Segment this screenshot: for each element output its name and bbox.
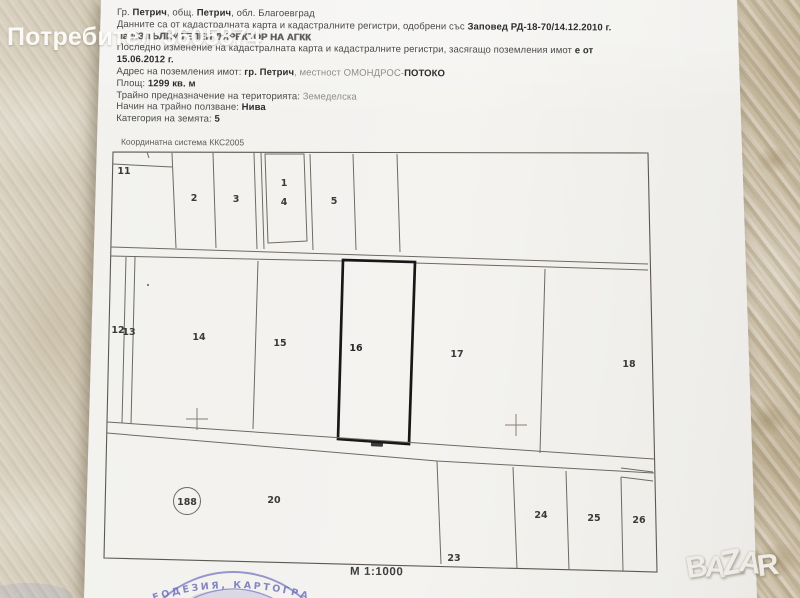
parcel-label-24: 24 — [534, 510, 548, 521]
official-stamp: ГЕОДЕЗИЯ, КАРТОГРАФ — [0, 0, 338, 598]
parcel-label-5: 5 — [331, 196, 338, 207]
ink-smudge — [0, 583, 73, 598]
map-scale-label: М 1:1000 — [350, 566, 404, 579]
parcel-label-2: 2 — [191, 193, 198, 204]
user-watermark: Потребител 3605874 — [7, 23, 261, 52]
parcel-label-3: 3 — [233, 194, 240, 205]
parcel-label-26: 26 — [632, 515, 646, 526]
parcel-label-16: 16 — [349, 343, 363, 354]
parcel-label-18: 18 — [622, 359, 636, 370]
top-band-boundaries — [111, 152, 648, 264]
parcel-label-11: 11 — [117, 166, 130, 177]
map-frame — [104, 152, 657, 572]
parcel-label-1: 1 — [281, 178, 288, 189]
parcel-label-17: 17 — [450, 349, 463, 360]
parcel-label-188: 188 — [177, 497, 197, 508]
survey-cross — [505, 414, 527, 436]
parcel-labels: 1123145121314151617182018823242526 — [111, 166, 646, 564]
survey-dot — [147, 284, 149, 286]
bottom-band-boundaries — [174, 461, 654, 571]
stamp-arc-text: ГЕОДЕЗИЯ, КАРТОГРАФ — [0, 0, 311, 598]
cadastral-map-svg: 1123145121314151617182018823242526 ГЕОДЕ… — [0, 0, 800, 598]
survey-cross — [186, 408, 208, 430]
bazar-logo: BAZAR — [685, 547, 777, 586]
parcel-label-13: 13 — [122, 327, 135, 338]
middle-band-boundaries — [111, 256, 648, 453]
parcel-label-20: 20 — [267, 495, 281, 506]
road-boundaries — [107, 422, 654, 473]
photo-of-cadastral-document: { "watermark": "Потребител 3605874", "lo… — [0, 0, 800, 598]
parcel-label-25: 25 — [587, 513, 600, 524]
logo-letter: R — [756, 548, 779, 584]
parcel-label-15: 15 — [273, 338, 286, 349]
parcel-label-4: 4 — [281, 197, 288, 208]
parcel-label-23: 23 — [447, 553, 460, 564]
parcel-label-14: 14 — [192, 332, 206, 343]
parcel-16-bottom-mark — [371, 441, 383, 447]
